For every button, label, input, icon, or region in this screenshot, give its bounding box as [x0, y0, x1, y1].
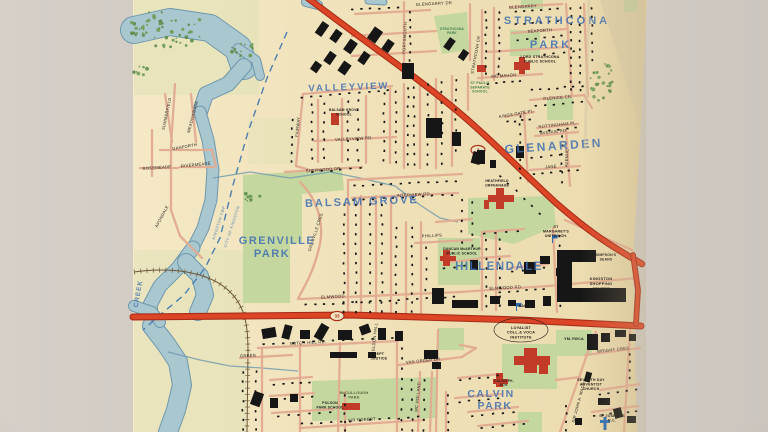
place-label: SCH.	[500, 383, 508, 387]
house-dot	[344, 282, 346, 284]
house-dot	[455, 129, 457, 131]
house-dot	[243, 400, 245, 402]
street-label: JANE	[545, 164, 557, 170]
house-dot	[291, 160, 293, 162]
house-dot	[411, 273, 413, 275]
black-building	[477, 150, 485, 164]
house-dot	[531, 9, 534, 11]
house-dot	[343, 233, 345, 235]
house-dot	[395, 151, 397, 153]
house-dot	[383, 121, 385, 123]
tree-dot	[171, 20, 173, 22]
house-dot	[396, 227, 398, 229]
house-dot	[358, 99, 360, 101]
house-dot	[241, 409, 243, 411]
house-dot	[351, 301, 353, 303]
house-dot	[369, 263, 371, 265]
house-dot	[441, 132, 443, 134]
house-dot	[343, 272, 345, 274]
house-dot	[407, 87, 409, 89]
house-dot	[542, 288, 545, 290]
tree-dot	[190, 39, 194, 43]
house-dot	[356, 271, 358, 273]
house-dot	[543, 267, 545, 269]
house-dot	[486, 258, 488, 260]
house-dot	[498, 57, 500, 59]
house-dot	[533, 173, 535, 175]
house-dot	[412, 418, 414, 421]
house-dot	[441, 162, 443, 165]
house-dot	[461, 199, 463, 202]
house-dot	[319, 95, 321, 97]
house-dot	[559, 275, 561, 277]
house-dot	[409, 11, 411, 13]
house-dot	[360, 8, 362, 10]
house-dot	[560, 255, 562, 257]
tree-dot	[181, 28, 184, 31]
house-dot	[521, 119, 523, 121]
house-dot	[570, 88, 572, 90]
house-dot	[454, 138, 456, 141]
house-dot	[255, 390, 257, 392]
house-dot	[447, 403, 449, 405]
house-dot	[378, 8, 380, 10]
tree-dot	[161, 26, 163, 28]
house-dot	[519, 80, 522, 82]
house-dot	[380, 184, 382, 186]
black-building	[290, 394, 298, 402]
tree-dot	[134, 27, 137, 30]
church-flag-icon	[516, 303, 517, 311]
house-dot	[564, 86, 566, 88]
house-dot	[347, 129, 349, 131]
house-dot	[408, 96, 410, 98]
house-dot	[380, 214, 382, 217]
house-dot	[401, 357, 403, 359]
house-dot	[427, 154, 429, 156]
house-dot	[436, 181, 439, 183]
tree-dot	[230, 50, 234, 54]
house-dot	[523, 10, 526, 12]
tree-dot	[130, 31, 134, 35]
house-dot	[320, 422, 322, 424]
house-dot	[369, 213, 371, 215]
house-dot	[531, 89, 533, 91]
place-label: LOYALIST	[511, 326, 532, 330]
black-building	[452, 132, 461, 146]
house-dot	[525, 289, 527, 291]
tree-dot	[145, 67, 149, 71]
house-dot	[397, 299, 399, 301]
house-dot	[445, 180, 447, 182]
house-dot	[447, 412, 449, 414]
black-building	[395, 331, 403, 341]
area-label: CALVIN	[467, 388, 514, 400]
house-dot	[395, 274, 397, 276]
house-dot	[409, 19, 411, 21]
house-dot	[570, 81, 572, 83]
house-dot	[369, 253, 371, 255]
black-building	[300, 330, 310, 339]
house-dot	[355, 223, 357, 225]
house-dot	[460, 230, 462, 232]
house-dot	[351, 9, 353, 11]
house-dot	[544, 104, 547, 106]
area-label: PARK	[478, 400, 513, 412]
house-dot	[447, 429, 449, 431]
house-dot	[308, 413, 310, 415]
place-label: SCHOOL	[336, 112, 352, 116]
house-dot	[480, 427, 482, 429]
house-dot	[552, 36, 554, 38]
house-dot	[414, 163, 416, 165]
tree-dot	[235, 51, 238, 54]
house-dot	[560, 162, 562, 164]
house-dot	[565, 421, 567, 423]
house-dot	[311, 157, 313, 159]
house-dot	[501, 425, 503, 427]
black-building	[490, 160, 496, 168]
house-dot	[369, 233, 371, 236]
red-building	[524, 348, 537, 373]
house-dot	[332, 340, 334, 342]
tree-dot	[156, 28, 160, 32]
map-photo-stage: 233GLENGARRYGLENGARRY DRSEAFORTHMC MAHON…	[0, 0, 768, 432]
tree-dot	[161, 11, 163, 13]
park-area	[547, 98, 573, 120]
house-dot	[407, 153, 409, 155]
red-building	[440, 256, 456, 261]
tree-dot	[175, 41, 177, 43]
house-dot	[291, 136, 293, 138]
house-dot	[395, 141, 397, 144]
black-building	[432, 288, 444, 304]
house-dot	[311, 130, 313, 133]
house-dot	[499, 27, 501, 29]
house-dot	[492, 426, 494, 428]
house-dot	[486, 26, 488, 28]
house-dot	[427, 143, 429, 145]
tree-dot	[158, 20, 161, 23]
place-label: PARK SCHOOL	[316, 405, 343, 409]
house-dot	[559, 305, 561, 307]
black-building	[402, 63, 414, 79]
house-dot	[312, 111, 314, 113]
place-label: UNITED CH.	[545, 234, 568, 238]
house-dot	[519, 133, 521, 135]
house-dot	[369, 292, 371, 294]
house-dot	[275, 399, 277, 401]
house-dot	[447, 394, 449, 396]
house-dot	[322, 130, 324, 132]
house-dot	[301, 396, 303, 398]
house-dot	[358, 159, 360, 161]
house-dot	[512, 411, 514, 413]
house-dot	[369, 223, 371, 225]
house-dot	[398, 418, 401, 420]
house-dot	[570, 72, 572, 74]
tree-dot	[163, 47, 165, 49]
house-dot	[471, 234, 473, 236]
tree-dot	[171, 31, 173, 33]
house-dot	[411, 388, 413, 390]
house-dot	[340, 421, 342, 423]
house-dot	[455, 180, 457, 182]
house-dot	[355, 311, 357, 313]
house-dot	[395, 130, 397, 132]
house-dot	[455, 79, 457, 81]
house-dot	[442, 122, 444, 124]
house-dot	[401, 367, 403, 369]
house-dot	[411, 245, 413, 247]
tree-dot	[244, 192, 248, 196]
house-dot	[540, 156, 542, 158]
house-dot	[576, 169, 578, 171]
house-dot	[499, 291, 501, 293]
black-building	[543, 296, 551, 306]
house-dot	[550, 172, 552, 174]
house-dot	[499, 42, 501, 44]
house-dot	[451, 194, 453, 196]
house-dot	[486, 285, 488, 287]
house-dot	[505, 231, 508, 233]
house-dot	[407, 144, 409, 146]
house-dot	[391, 337, 393, 339]
place-label: ST	[554, 225, 560, 229]
house-dot	[485, 57, 487, 59]
house-dot	[454, 118, 456, 120]
house-dot	[342, 303, 344, 305]
house-dot	[357, 128, 359, 130]
tree-dot	[137, 72, 141, 76]
house-dot	[282, 342, 284, 344]
house-dot	[570, 57, 572, 59]
tree-dot	[179, 34, 182, 37]
tree-dot	[145, 20, 147, 22]
house-dot	[411, 301, 413, 303]
house-dot	[423, 419, 425, 421]
house-dot	[503, 81, 505, 83]
house-dot	[471, 201, 473, 203]
house-dot	[409, 67, 411, 69]
street-label: GREEN	[240, 353, 256, 359]
house-dot	[519, 123, 521, 125]
house-dot	[426, 278, 428, 280]
tree-dot	[141, 26, 145, 30]
house-dot	[523, 423, 525, 425]
house-dot	[499, 304, 501, 306]
tree-dot	[185, 44, 188, 47]
house-dot	[515, 11, 517, 13]
house-dot	[311, 148, 313, 150]
house-dot	[329, 411, 332, 413]
house-dot	[311, 396, 313, 398]
house-dot	[330, 421, 332, 423]
house-dot	[297, 414, 299, 416]
house-dot	[413, 96, 415, 99]
house-dot	[413, 134, 415, 136]
house-dot	[255, 419, 257, 421]
house-dot	[519, 177, 521, 179]
house-dot	[395, 161, 397, 163]
house-dot	[381, 223, 383, 225]
house-dot	[461, 241, 463, 243]
black-building	[508, 300, 516, 306]
house-dot	[458, 401, 460, 403]
house-dot	[427, 123, 429, 126]
house-dot	[255, 380, 257, 382]
house-dot	[310, 96, 313, 98]
house-dot	[300, 382, 302, 384]
black-building	[432, 362, 441, 369]
house-dot	[561, 181, 563, 183]
house-dot	[323, 303, 325, 305]
house-dot	[499, 258, 501, 260]
house-dot	[401, 428, 403, 430]
house-dot	[407, 115, 409, 117]
tree-dot	[198, 18, 201, 21]
house-dot	[411, 236, 413, 239]
house-dot	[381, 233, 383, 235]
house-dot	[355, 243, 357, 245]
house-dot	[413, 105, 415, 107]
house-dot	[409, 51, 411, 53]
house-dot	[369, 311, 371, 313]
house-dot	[516, 39, 518, 41]
house-dot	[411, 283, 413, 285]
house-dot	[395, 91, 397, 93]
house-dot	[553, 104, 555, 106]
house-dot	[324, 112, 326, 114]
house-dot	[347, 149, 349, 151]
house-dot	[381, 262, 383, 264]
house-dot	[318, 412, 320, 414]
house-dot	[425, 247, 427, 249]
house-dot	[379, 300, 381, 302]
house-dot	[272, 343, 274, 345]
house-dot	[407, 417, 409, 419]
route-shield-number: 33	[334, 314, 340, 319]
house-dot	[514, 121, 517, 123]
house-dot	[408, 182, 410, 184]
house-dot	[422, 429, 424, 431]
tree-dot	[247, 200, 249, 202]
house-dot	[242, 390, 244, 392]
house-dot	[569, 7, 571, 9]
house-dot	[572, 101, 575, 103]
house-dot	[440, 91, 442, 93]
house-dot	[478, 377, 480, 379]
house-dot	[410, 408, 412, 410]
house-dot	[396, 302, 398, 304]
house-dot	[561, 153, 563, 156]
house-dot	[434, 297, 436, 299]
area-label: GRENVILLE	[239, 235, 315, 247]
house-dot	[485, 42, 487, 44]
black-building	[452, 300, 478, 308]
place-label: MARGARET'S	[543, 230, 569, 234]
house-dot	[410, 42, 412, 44]
red-building	[496, 188, 504, 209]
place-label: McCULLOUGH	[340, 391, 369, 395]
house-dot	[519, 159, 521, 161]
tree-dot	[240, 50, 242, 52]
house-dot	[347, 120, 349, 122]
house-dot	[273, 384, 276, 386]
house-dot	[343, 311, 345, 313]
house-dot	[323, 157, 325, 159]
house-dot	[455, 89, 457, 91]
house-dot	[440, 101, 442, 103]
area-label: HILLENDALE	[455, 261, 543, 273]
house-dot	[561, 171, 563, 174]
house-dot	[342, 339, 344, 341]
house-dot	[485, 50, 487, 52]
house-dot	[486, 305, 488, 307]
tree-dot	[147, 19, 150, 22]
house-dot	[361, 338, 363, 340]
house-dot	[539, 88, 541, 90]
house-dot	[424, 289, 426, 291]
house-dot	[409, 59, 411, 61]
tree-dot	[240, 43, 242, 45]
house-dot	[343, 243, 345, 245]
house-dot	[526, 38, 528, 40]
house-dot	[291, 152, 293, 154]
house-dot	[311, 121, 313, 124]
house-dot	[455, 108, 457, 110]
house-dot	[416, 298, 418, 300]
house-dot	[455, 149, 457, 151]
house-dot	[423, 399, 425, 402]
house-dot	[413, 153, 415, 155]
place-label: ORPHANAGE	[485, 183, 509, 187]
house-dot	[481, 414, 483, 416]
house-dot	[301, 423, 303, 425]
house-dot	[471, 212, 473, 214]
house-dot	[383, 140, 385, 142]
tree-dot	[145, 31, 148, 34]
tree-dot	[251, 47, 253, 49]
house-dot	[357, 118, 359, 120]
tree-dot	[231, 47, 233, 49]
house-dot	[323, 121, 325, 124]
house-dot	[559, 245, 561, 247]
house-dot	[519, 167, 521, 169]
tree-dot	[142, 73, 145, 76]
tree-dot	[188, 24, 191, 27]
house-dot	[441, 81, 443, 83]
place-label: LORD STRATHCONA	[520, 55, 559, 59]
house-dot	[383, 150, 385, 152]
house-dot	[381, 310, 383, 312]
house-dot	[349, 168, 351, 170]
house-dot	[570, 31, 572, 33]
house-dot	[426, 257, 428, 259]
creek-water	[368, 1, 384, 2]
house-dot	[344, 213, 346, 215]
house-dot	[388, 7, 390, 9]
tree-dot	[175, 19, 177, 21]
tree-dot	[249, 195, 251, 197]
house-dot	[498, 18, 500, 20]
house-dot	[497, 375, 499, 377]
house-dot	[384, 103, 386, 105]
house-dot	[401, 378, 403, 380]
house-dot	[499, 248, 501, 250]
house-dot	[485, 72, 487, 74]
house-dot	[338, 93, 341, 95]
